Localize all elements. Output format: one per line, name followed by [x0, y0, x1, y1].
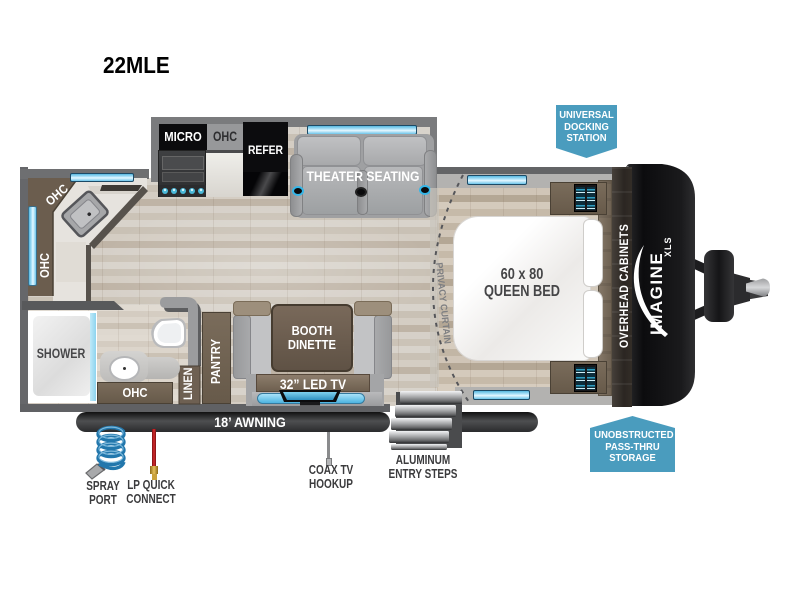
svg-text:XLS: XLS — [663, 236, 673, 257]
